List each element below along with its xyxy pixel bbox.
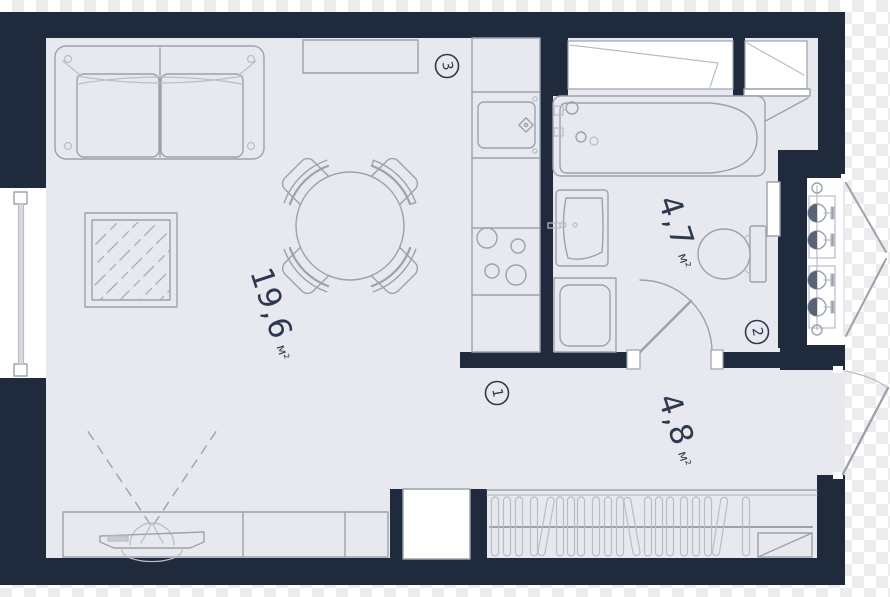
washbasin: [548, 190, 608, 266]
floor-plan-svg: 19,6м² 4,7м² 4,8м² 1 2 3: [0, 0, 890, 597]
sofa: [55, 46, 264, 159]
door-jamb: [711, 350, 723, 369]
toilet: [698, 226, 766, 282]
service-hatch-doors: [841, 174, 886, 344]
washing-machine: [554, 278, 616, 352]
kitchen-counter: [472, 38, 540, 352]
wall-shelf: [303, 40, 418, 73]
window: [0, 188, 46, 378]
towel-radiator: [767, 182, 780, 236]
floor-plan-image: 19,6м² 4,7м² 4,8м² 1 2 3: [0, 0, 890, 597]
radiator-risers: [807, 178, 843, 345]
bathtub: [553, 96, 765, 176]
duct-shaft: [568, 41, 807, 89]
door-jamb: [627, 350, 640, 369]
dining-table: [272, 148, 428, 304]
duct-block: [403, 489, 470, 559]
